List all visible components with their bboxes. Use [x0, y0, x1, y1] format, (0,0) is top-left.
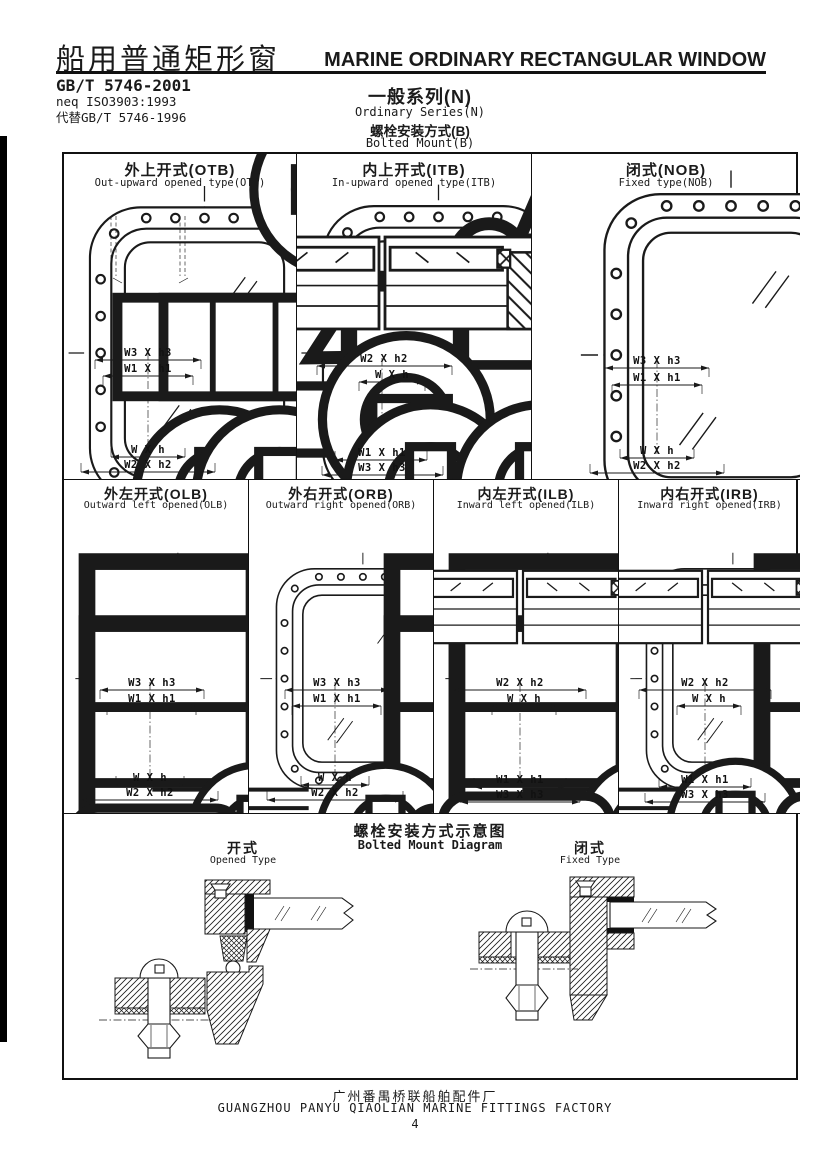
dim-label: W3 X h3 — [633, 355, 681, 367]
binding-edge-bar — [0, 136, 7, 1042]
series-label-en: Ordinary Series(N) — [290, 105, 550, 119]
panel-itb: W2 X h2 W X h W1 X h1 W3 X h3 内上开式(ITB) … — [297, 154, 532, 480]
dim-label: W X h — [507, 693, 541, 705]
opened-type-label-en: Opened Type — [163, 855, 323, 866]
dim-label: W2 X h2 — [124, 459, 172, 471]
page-number: 4 — [0, 1117, 830, 1131]
dim-label: W1 X h1 — [313, 693, 361, 705]
dim-label: W X h — [640, 445, 674, 457]
glass-pane — [252, 898, 353, 929]
fixed-type-section — [470, 874, 720, 1024]
olb-drawing: W3 X h3 W1 X h1 W X h W2 X h2 — [64, 480, 249, 814]
ilb-drawing: W2 X h2 W X h W1 X h1 W3 X h3 — [434, 480, 619, 814]
dim-label: W3 X h3 — [681, 789, 729, 801]
glass-seal — [607, 897, 634, 902]
dim-label: W2 X h2 — [496, 677, 544, 689]
fixed-type-label-en: Fixed Type — [510, 855, 670, 866]
otb-drawing: W3 X h3 W1 X h1 W X h W2 X h2 — [64, 154, 297, 480]
dim-label: W3 X h3 — [313, 677, 361, 689]
panel-nob: W3 X h3 W1 X h1 W X h W2 X h2 闭式(NOB) Fi… — [532, 154, 800, 480]
dim-label: W1 X h1 — [124, 363, 172, 375]
page-title-english: MARINE ORDINARY RECTANGULAR WINDOW — [324, 49, 766, 72]
itb-title-en: In-upward opened type(ITB) — [297, 177, 531, 189]
glass-seal — [607, 928, 634, 933]
dim-label: W X h — [318, 772, 352, 784]
olb-title-en: Outward left opened(OLB) — [64, 500, 248, 511]
orb-drawing: W3 X h3 W1 X h1 W X h W2 X h2 — [249, 480, 434, 814]
title-rule — [56, 71, 766, 74]
panel-irb: W2 X h2 W X h W1 X h1 W3 X h3 内右开式(IRB) … — [619, 480, 800, 814]
panel-orb: W3 X h3 W1 X h1 W X h W2 X h2 外右开式(ORB) … — [249, 480, 434, 814]
dim-label: W X h — [692, 693, 726, 705]
nob-title-en: Fixed type(NOB) — [532, 177, 800, 189]
irb-title-en: Inward right opened(IRB) — [619, 500, 800, 511]
glass-seal — [245, 894, 254, 932]
dim-label: W3 X h3 — [128, 677, 176, 689]
dim-label: W1 X h1 — [496, 774, 544, 786]
dim-label: W X h — [131, 444, 165, 456]
mount-bolt — [506, 911, 548, 1020]
standard-code: GB/T 5746-2001 — [56, 76, 191, 95]
otb-title-en: Out-upward opened type(OTB) — [64, 177, 296, 189]
hex-nut — [138, 1024, 180, 1048]
hinge-icon — [163, 298, 297, 397]
ilb-title-en: Inward left opened(ILB) — [434, 500, 618, 511]
standard-supersedes: 代替GB/T 5746-1996 — [56, 107, 186, 126]
mount-diagram-panel: 螺栓安装方式示意图 Bolted Mount Diagram 开式 Opened… — [64, 814, 796, 1078]
opened-type-section — [99, 868, 359, 1064]
drawing-table: W3 X h3 W1 X h1 W X h W2 X h2 外上开式(OTB) … — [62, 152, 798, 1080]
irb-drawing: W2 X h2 W X h W1 X h1 W3 X h3 — [619, 480, 800, 814]
dim-label: W1 X h1 — [358, 447, 406, 459]
orb-title-en: Outward right opened(ORB) — [249, 500, 433, 511]
glass-pane — [610, 902, 716, 928]
dim-label: W3 X h3 — [124, 347, 172, 359]
dim-label: W X h — [133, 772, 167, 784]
dim-label: W2 X h2 — [126, 787, 174, 799]
dim-label: W2 X h2 — [681, 677, 729, 689]
nob-front-view — [581, 171, 800, 480]
dim-label: W1 X h1 — [681, 774, 729, 786]
dim-label: W2 X h2 — [633, 460, 681, 472]
itb-drawing: W2 X h2 W X h W1 X h1 W3 X h3 — [297, 154, 532, 480]
dim-label: W3 X h3 — [496, 789, 544, 801]
nob-drawing: W3 X h3 W1 X h1 W X h W2 X h2 — [532, 154, 800, 480]
dim-label: W1 X h1 — [633, 372, 681, 384]
panel-otb: W3 X h3 W1 X h1 W X h W2 X h2 外上开式(OTB) … — [64, 154, 297, 480]
catalog-page: 船用普通矩形窗 MARINE ORDINARY RECTANGULAR WIND… — [0, 0, 830, 1175]
hex-nut — [506, 985, 548, 1011]
rubber-gasket — [220, 936, 247, 961]
mount-label-en: Bolted Mount(B) — [290, 136, 550, 150]
dim-label: W1 X h1 — [128, 693, 176, 705]
factory-name-en: GUANGZHOU PANYU QIAOLIAN MARINE FITTINGS… — [0, 1101, 830, 1115]
dim-label: W2 X h2 — [311, 787, 359, 799]
dim-label: W3 X h3 — [358, 462, 406, 474]
frame-bracket — [207, 966, 263, 1044]
panel-olb: W3 X h3 W1 X h1 W X h W2 X h2 外左开式(OLB) … — [64, 480, 249, 814]
dim-label: W2 X h2 — [360, 353, 408, 365]
panel-ilb: W2 X h2 W X h W1 X h1 W3 X h3 内左开式(ILB) … — [434, 480, 619, 814]
dim-label: W X h — [375, 369, 409, 381]
